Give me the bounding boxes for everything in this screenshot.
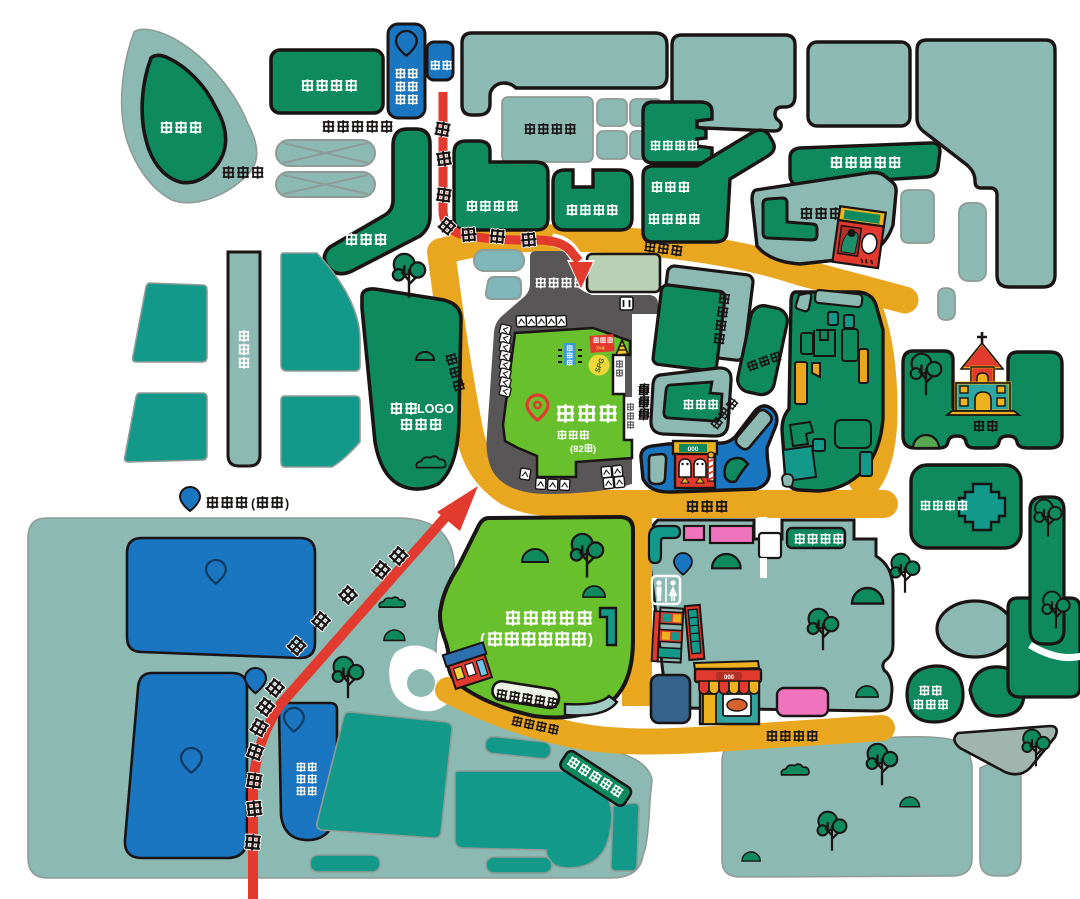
svg-text:): )	[593, 444, 596, 455]
svg-text:000: 000	[688, 446, 699, 453]
svg-text:7×4: 7×4	[596, 346, 605, 352]
svg-text:(82: (82	[570, 444, 584, 455]
svg-text:): )	[285, 497, 289, 511]
svg-text:000: 000	[724, 675, 735, 681]
svg-text:): )	[588, 631, 593, 648]
svg-text:LOGO: LOGO	[417, 402, 454, 416]
